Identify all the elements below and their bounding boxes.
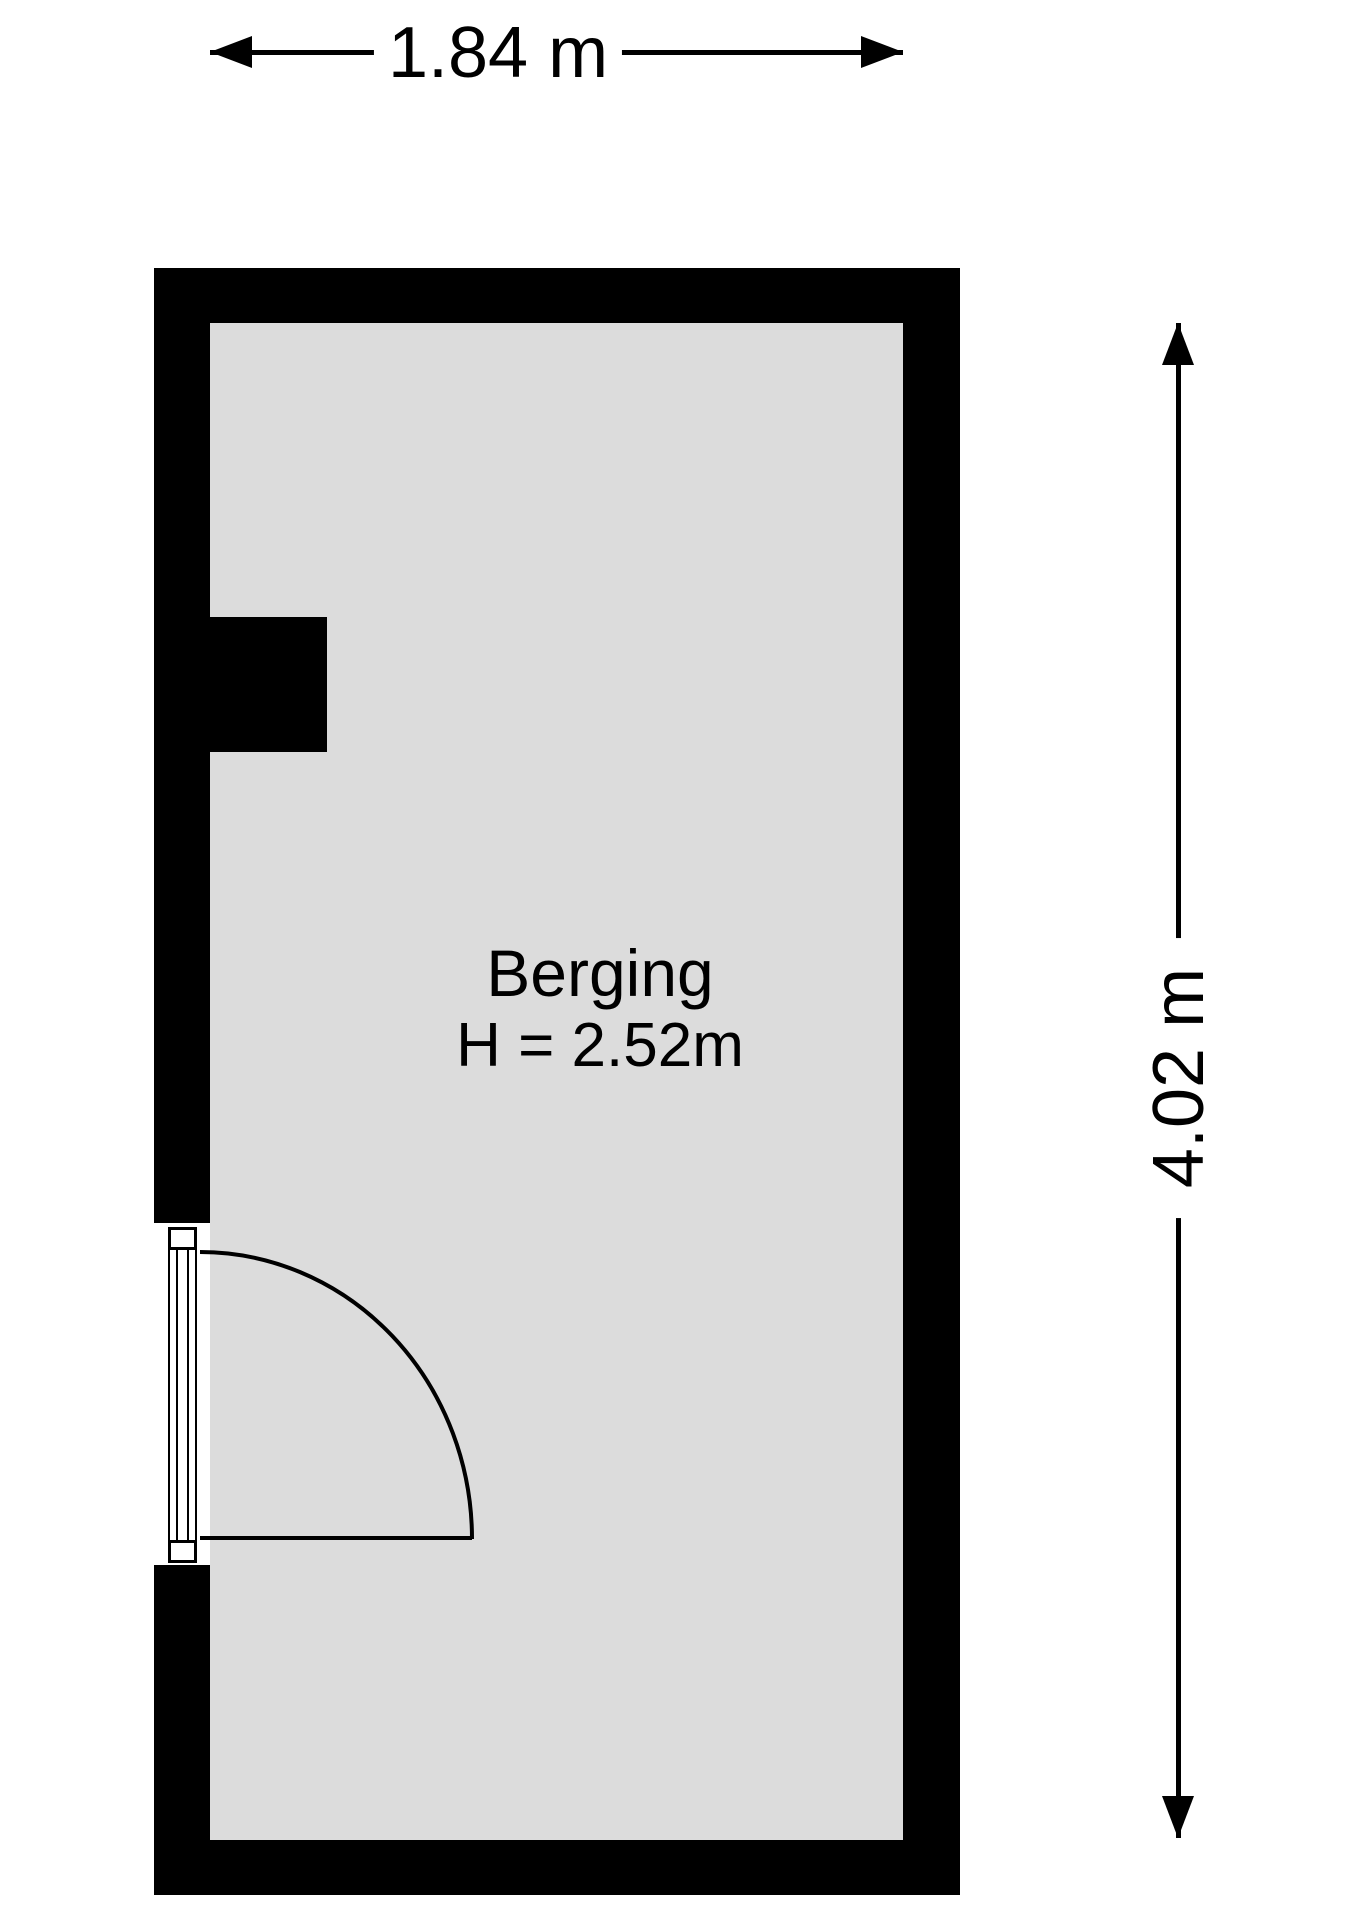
door-frame-line [168,1250,170,1540]
wall-protrusion [205,617,327,752]
height-dimension-label: 4.02 m [1143,938,1215,1218]
room-label: Berging H = 2.52m [456,936,744,1082]
room-name: Berging [456,936,744,1010]
arrowhead-right-icon [861,36,903,68]
height-dimension: 4.02 m [1126,323,1236,1838]
arrowhead-up-icon [1162,323,1194,365]
door-frame-line [176,1250,178,1540]
width-dimension-label: 1.84 m [374,17,622,89]
door-jamb-top [168,1227,197,1250]
floor-plan: Berging H = 2.52m 1.84 m 4.02 m [0,0,1358,1920]
arrowhead-down-icon [1162,1796,1194,1838]
width-dimension: 1.84 m [210,0,903,110]
arrowhead-left-icon [210,36,252,68]
room-ceiling-height: H = 2.52m [456,1010,744,1082]
door-jamb-bottom [168,1540,197,1563]
door-frame-line [187,1250,189,1540]
door-swing-arc-icon [196,1248,478,1544]
